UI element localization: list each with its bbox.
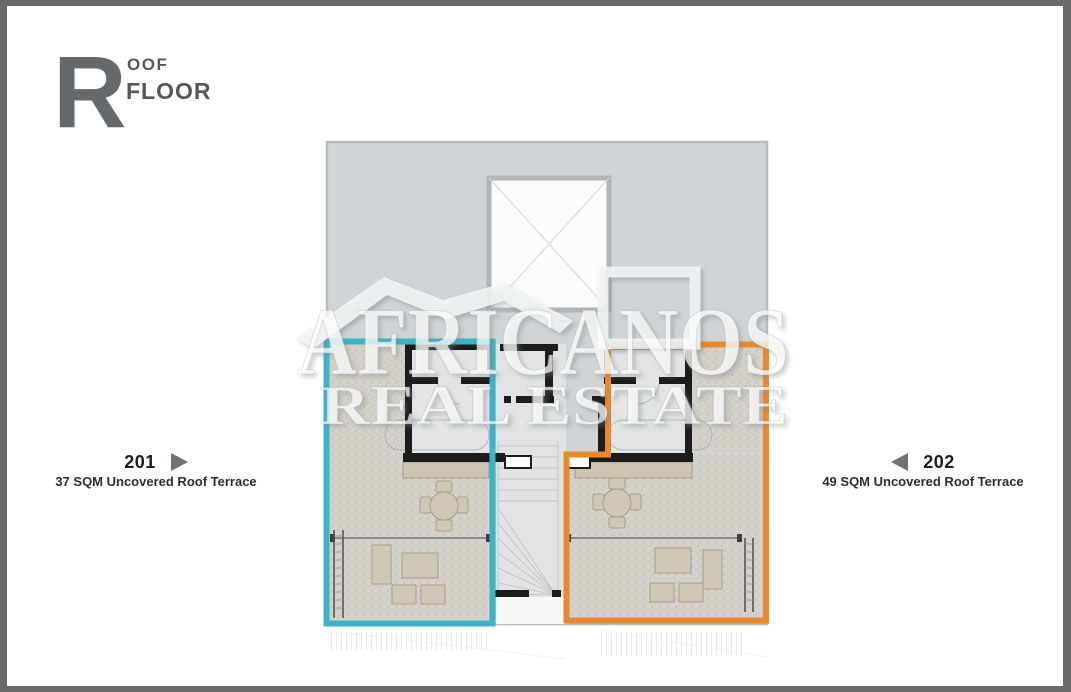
header-initial: R <box>53 41 127 143</box>
unit-202-number: 202 <box>923 452 955 473</box>
unit-201-number: 201 <box>124 452 156 473</box>
unit-202-arrow-left-icon <box>891 453 908 471</box>
watermark: AFRICANOS REAL ESTATE <box>296 272 789 437</box>
unit-201-label: 201 37 SQM Uncovered Roof Terrace <box>40 452 272 489</box>
reflection-hatch <box>330 630 768 659</box>
header-word-top: OOF <box>127 55 168 75</box>
watermark-line2: REAL ESTATE <box>320 375 788 437</box>
header-word-bottom: FLOOR <box>126 78 212 105</box>
unit-201-area-text: 37 SQM Uncovered Roof Terrace <box>40 474 272 489</box>
unit-202-label: 202 49 SQM Uncovered Roof Terrace <box>818 452 1028 489</box>
page: R OOF FLOOR <box>0 0 1071 692</box>
unit-202-area-text: 49 SQM Uncovered Roof Terrace <box>818 474 1028 489</box>
unit-201-arrow-right-icon <box>171 453 188 471</box>
